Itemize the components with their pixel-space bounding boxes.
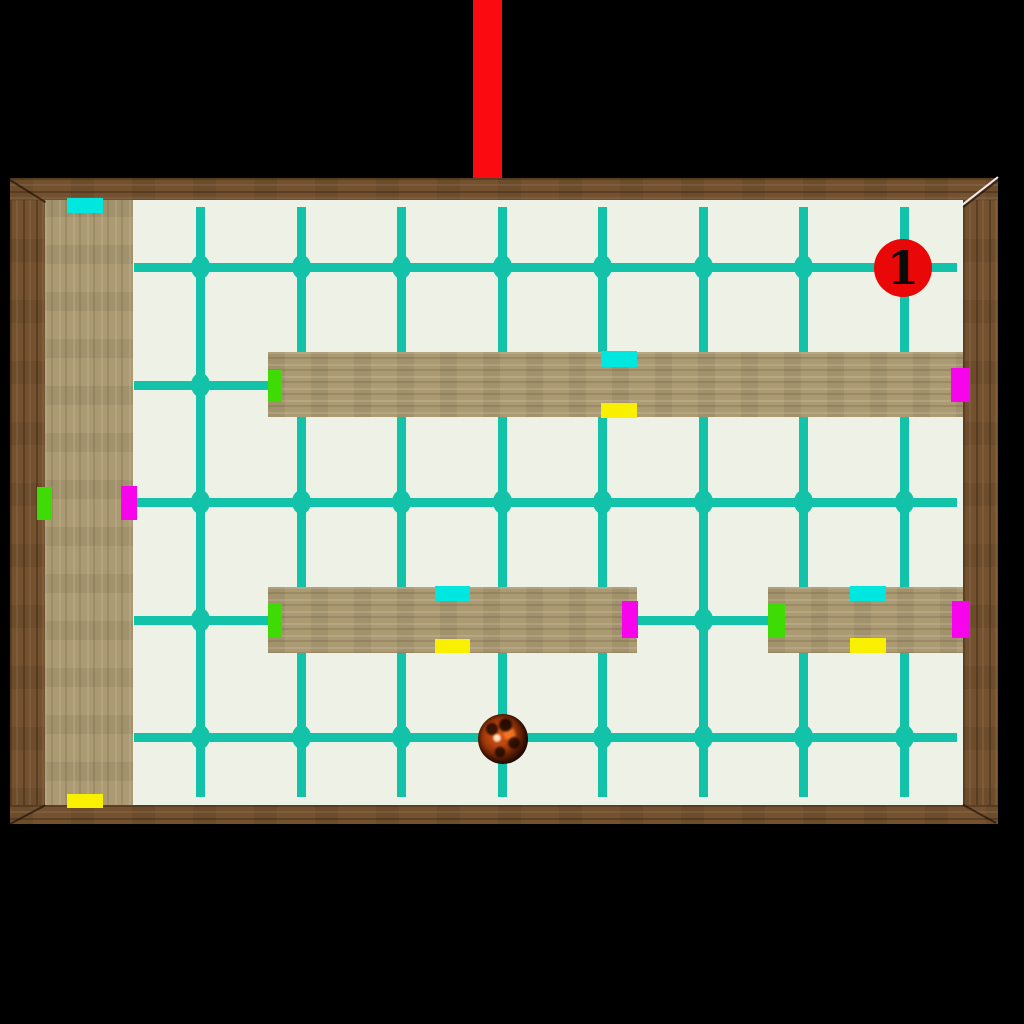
bumper-east <box>952 601 970 638</box>
grid-dot <box>292 490 311 514</box>
grid-dot <box>694 725 713 749</box>
grid-dot <box>392 490 411 514</box>
bumper-north <box>601 351 637 367</box>
grid-dot <box>191 608 210 632</box>
ball[interactable] <box>478 714 528 764</box>
bumper-west <box>268 370 282 402</box>
bumper-north <box>435 586 470 601</box>
bumper-south <box>435 639 470 653</box>
board-frame-right <box>963 178 998 824</box>
grid-dot <box>191 255 210 279</box>
grid-dot <box>593 255 612 279</box>
bumper-west <box>768 603 785 638</box>
grid-dot <box>895 490 914 514</box>
checkpoint-label: 1 <box>887 245 919 291</box>
game-scene: 1 <box>0 0 1024 1024</box>
grid-dot <box>593 725 612 749</box>
checkpoint-badge: 1 <box>874 239 932 297</box>
board-frame-bottom <box>10 805 998 824</box>
bumper-south <box>601 403 637 418</box>
grid-dot <box>794 255 813 279</box>
grid-dot <box>392 255 411 279</box>
board-frame-top <box>10 178 998 200</box>
grid-line-horizontal <box>134 498 957 507</box>
grid-dot <box>392 725 411 749</box>
grid-dot <box>794 725 813 749</box>
grid-dot <box>191 490 210 514</box>
grid-dot <box>292 255 311 279</box>
grid-dot <box>493 490 512 514</box>
bumper-north <box>67 198 103 213</box>
grid-dot <box>191 373 210 397</box>
grid-dot <box>694 490 713 514</box>
grid-dot <box>895 725 914 749</box>
left-wall <box>45 198 133 806</box>
grid-dot <box>794 490 813 514</box>
grid-dot <box>694 608 713 632</box>
grid-dot <box>292 725 311 749</box>
grid-dot <box>593 490 612 514</box>
bumper-north <box>850 586 886 601</box>
grid-dot <box>493 255 512 279</box>
bumper-west <box>37 487 52 520</box>
grid-line-horizontal <box>134 733 957 742</box>
pendulum-rod <box>473 0 502 181</box>
bumper-east <box>951 368 970 402</box>
grid-dot <box>694 255 713 279</box>
bumper-east <box>121 486 137 520</box>
grid-dot <box>191 725 210 749</box>
grid-line-horizontal <box>134 263 957 272</box>
bumper-west <box>268 603 282 637</box>
bumper-south <box>850 638 886 653</box>
bumper-east <box>622 601 638 638</box>
bumper-south <box>67 794 103 808</box>
